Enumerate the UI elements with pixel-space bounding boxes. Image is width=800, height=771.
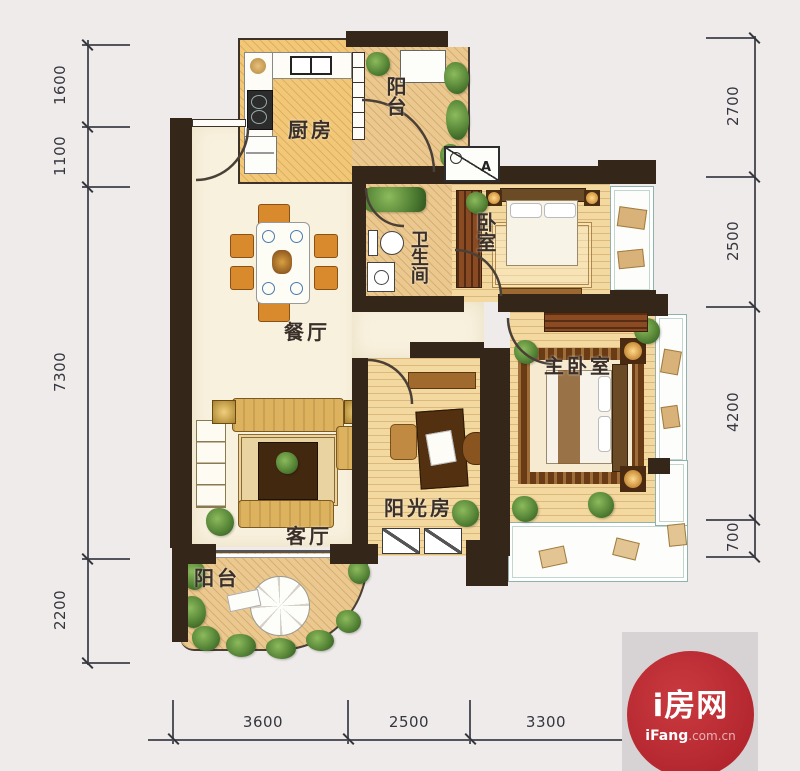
balcony-top-plant bbox=[444, 62, 469, 94]
dim-value: 2700 bbox=[724, 86, 742, 126]
master-bay-window-right bbox=[655, 314, 687, 464]
room-label-bathroom: 卫生间 bbox=[408, 230, 427, 284]
entry-door-arc bbox=[196, 128, 248, 180]
dining-centerpiece bbox=[272, 250, 292, 274]
dining-chair bbox=[314, 266, 338, 290]
bedroom-pillow bbox=[544, 203, 576, 218]
living-plant bbox=[206, 508, 234, 536]
floorplan-image: A 厨房 阳台 卧室 卫生间 餐厅 主卧室 阳光房 客厅 阳台 1600 110… bbox=[0, 0, 800, 771]
wall-master-corner-br bbox=[648, 458, 670, 474]
stove-burner bbox=[251, 110, 267, 124]
wall-sunroom-master bbox=[480, 348, 510, 556]
room-label-kitchen: 厨房 bbox=[288, 114, 334, 143]
washer-door bbox=[374, 270, 389, 285]
master-lamp-glow bbox=[624, 470, 642, 488]
logo-domain: iFang.com.cn bbox=[627, 728, 754, 744]
kitchen-sink-divider bbox=[310, 57, 312, 73]
master-plant bbox=[588, 492, 614, 518]
kitchen-faucet-icon bbox=[250, 58, 266, 74]
dim-ext bbox=[706, 37, 756, 39]
bedroom-bay-window bbox=[610, 186, 654, 294]
logo-domain-rest: .com.cn bbox=[688, 729, 735, 743]
sunroom-paper bbox=[425, 430, 456, 466]
dining-plate bbox=[262, 230, 275, 243]
balcony-bottom-plant bbox=[336, 610, 361, 633]
bay-cushion bbox=[617, 249, 645, 270]
bay-cushion bbox=[617, 206, 648, 230]
master-headboard bbox=[612, 364, 628, 472]
master-pillow bbox=[598, 416, 611, 452]
ac-platform-label: A bbox=[481, 160, 491, 175]
dim-ext bbox=[706, 306, 756, 308]
dim-value: 2200 bbox=[51, 590, 69, 630]
wall-left bbox=[170, 118, 192, 548]
bedroom-pillow bbox=[510, 203, 542, 218]
living-side-cabinet bbox=[196, 420, 226, 508]
living-lamp-table bbox=[212, 400, 236, 424]
logo-title: i房网 bbox=[627, 680, 754, 725]
room-label-living: 客厅 bbox=[286, 520, 332, 549]
dim-line bbox=[87, 40, 89, 665]
dim-line bbox=[148, 739, 690, 741]
bedroom-lamp-glow bbox=[586, 192, 598, 204]
bay-cushion bbox=[667, 523, 687, 547]
wall-balcony-top bbox=[346, 31, 448, 47]
sunroom-window bbox=[382, 528, 420, 554]
room-label-balcony-bottom: 阳台 bbox=[194, 562, 240, 591]
room-label-dining: 餐厅 bbox=[284, 316, 330, 345]
wall-living-bottom-right bbox=[330, 544, 378, 564]
sunroom-plant bbox=[452, 500, 479, 527]
master-bed-runner bbox=[558, 370, 580, 464]
toilet-tank bbox=[368, 230, 378, 256]
wall-sunroom-top bbox=[410, 342, 484, 358]
master-wardrobe bbox=[544, 312, 648, 332]
master-plant bbox=[512, 496, 538, 522]
bay-cushion bbox=[661, 405, 681, 429]
master-lamp-glow bbox=[624, 342, 642, 360]
wall-living-bottom-left bbox=[172, 544, 216, 564]
master-bay-window-bottom bbox=[508, 522, 688, 582]
dim-value: 3600 bbox=[228, 713, 298, 731]
balcony-bottom-plant bbox=[226, 634, 256, 657]
dim-value: 3300 bbox=[511, 713, 581, 731]
dining-chair bbox=[314, 234, 338, 258]
sunroom-cabinet bbox=[408, 372, 476, 389]
master-pillow bbox=[598, 376, 611, 412]
wall-entry-top bbox=[192, 119, 246, 127]
toilet-bowl-icon bbox=[380, 231, 404, 255]
balcony-top-plant bbox=[446, 100, 469, 140]
kitchen-fridge-line bbox=[246, 152, 274, 154]
balcony-bottom-plant bbox=[306, 630, 334, 651]
kitchen-fridge-icon bbox=[244, 136, 277, 174]
dining-plate bbox=[290, 230, 303, 243]
dim-value: 700 bbox=[724, 517, 742, 557]
bedroom-lamp-glow bbox=[488, 192, 500, 204]
room-label-balcony-top: 阳台 bbox=[384, 76, 405, 116]
wall-bath-bottom bbox=[352, 296, 464, 312]
dining-chair bbox=[230, 266, 254, 290]
balcony-top-plant bbox=[366, 52, 390, 76]
dim-line bbox=[754, 36, 756, 558]
dim-value: 1600 bbox=[51, 65, 69, 105]
balcony-bottom-plant bbox=[266, 638, 296, 659]
dining-chair bbox=[230, 234, 254, 258]
dining-plate bbox=[262, 282, 275, 295]
wall-dining-bath bbox=[352, 184, 366, 306]
room-label-master: 主卧室 bbox=[544, 350, 613, 379]
room-label-bedroom: 卧室 bbox=[474, 212, 495, 252]
bathroom-door-arc bbox=[366, 188, 404, 226]
bedroom-plant bbox=[466, 192, 488, 214]
ac-platform bbox=[444, 146, 500, 182]
dim-value: 4200 bbox=[724, 392, 742, 432]
dim-value: 2500 bbox=[724, 221, 742, 261]
stove-burner bbox=[251, 95, 267, 109]
dim-ext bbox=[706, 176, 756, 178]
dim-value: 7300 bbox=[51, 352, 69, 392]
dim-value: 2500 bbox=[374, 713, 444, 731]
bedroom-door-arc bbox=[455, 250, 501, 296]
balcony-slider-line bbox=[216, 550, 330, 553]
balcony-bottom-plant bbox=[192, 626, 220, 651]
ac-platform-circle bbox=[450, 152, 462, 164]
dining-plate bbox=[290, 282, 303, 295]
sunroom-chair-left bbox=[390, 424, 417, 460]
dim-value: 1100 bbox=[51, 136, 69, 176]
coffee-table-plant bbox=[276, 452, 298, 474]
sunroom-door-arc bbox=[368, 360, 412, 404]
room-label-sunroom: 阳光房 bbox=[384, 492, 453, 521]
wall-sunroom-bottom-block bbox=[466, 540, 508, 586]
sunroom-window bbox=[424, 528, 462, 554]
wall-bedroom-top-right bbox=[598, 160, 656, 184]
living-sofa-top bbox=[232, 398, 344, 432]
logo-domain-bold: iFang bbox=[645, 728, 688, 744]
wall-living-sunroom bbox=[352, 358, 368, 558]
